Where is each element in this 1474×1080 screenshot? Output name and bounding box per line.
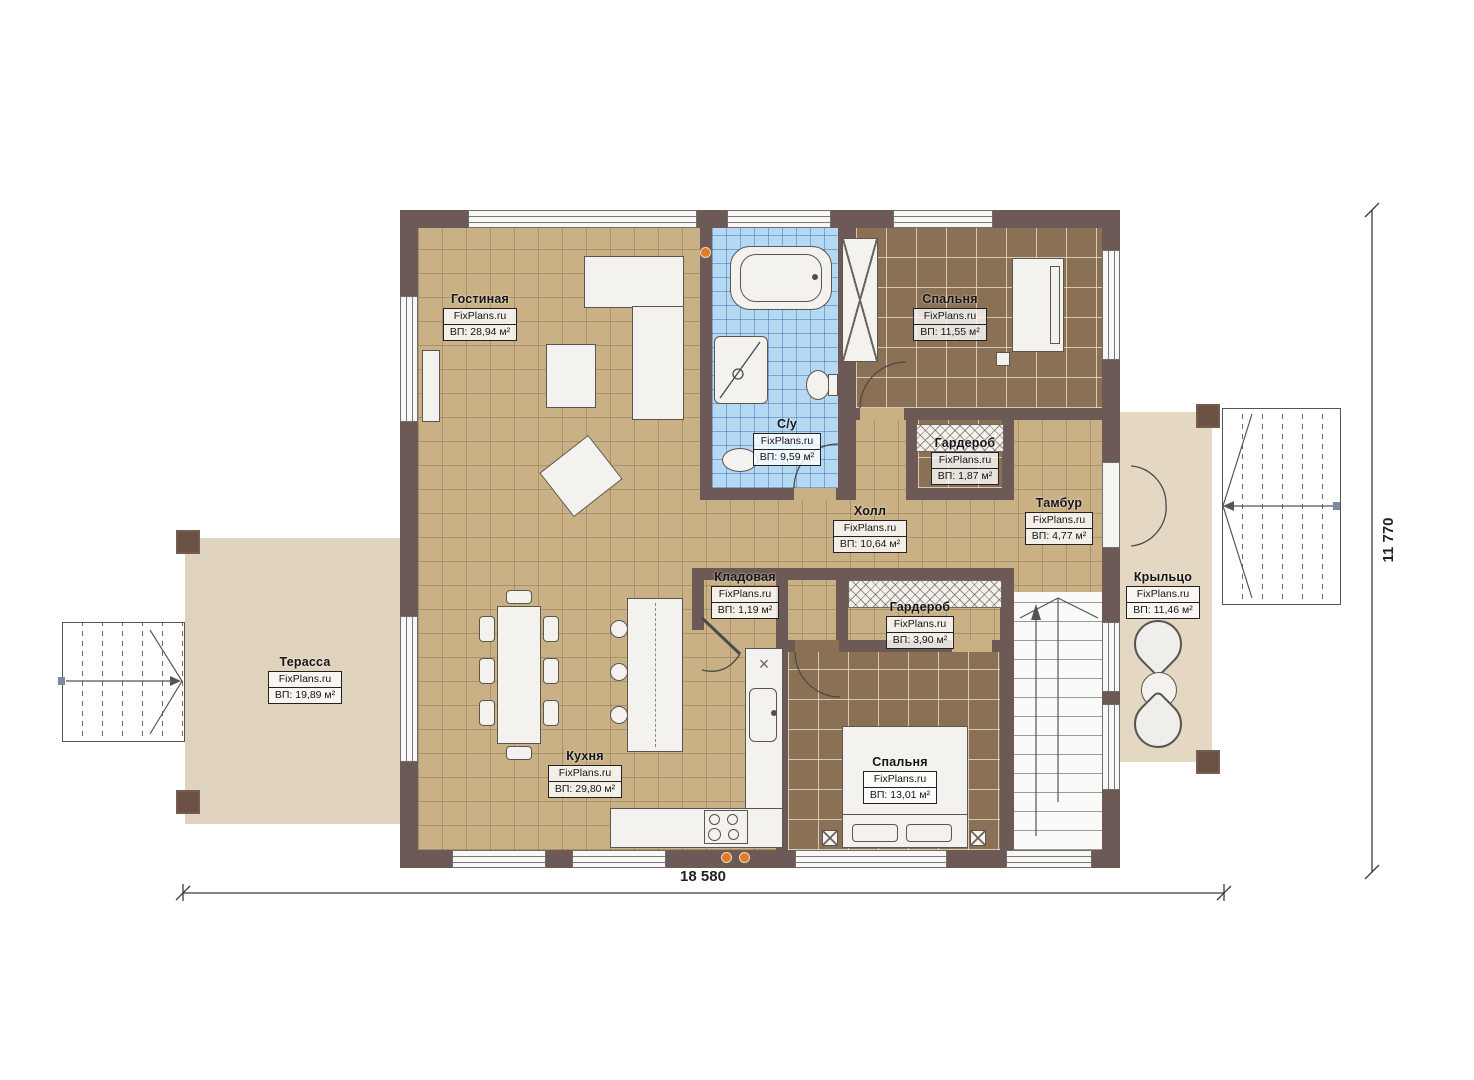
appliance-x-icon: × <box>752 652 776 676</box>
burner-icon <box>708 828 721 841</box>
window <box>1102 704 1120 790</box>
dimension-height-label: 11 770 <box>1380 500 1400 580</box>
room-name: Холл <box>805 504 935 518</box>
bar-stool <box>610 663 628 681</box>
terrace-post <box>176 530 200 554</box>
room-label-box: FixPlans.ru ВП: 1,87 м² <box>931 452 999 485</box>
window <box>893 210 993 228</box>
nightstand <box>822 830 838 846</box>
room-area: ВП: 4,77 м² <box>1026 528 1092 544</box>
utility-point-dot <box>740 853 749 862</box>
tv-stand <box>422 350 440 422</box>
room-name: Гостиная <box>415 292 545 306</box>
burner-icon <box>727 814 738 825</box>
room-label-box: FixPlans.ru ВП: 3,90 м² <box>886 616 954 649</box>
window <box>727 210 831 228</box>
brand-watermark: FixPlans.ru <box>864 772 936 787</box>
bar-stool <box>610 706 628 724</box>
kitchen-island <box>627 598 683 752</box>
room-label-porch: Крыльцо FixPlans.ru ВП: 11,46 м² <box>1100 570 1226 619</box>
sofa-section <box>584 256 684 308</box>
room-label-box: FixPlans.ru ВП: 4,77 м² <box>1025 512 1093 545</box>
room-label-bedroom1: Спальня FixPlans.ru ВП: 11,55 м² <box>885 292 1015 341</box>
window <box>572 850 666 868</box>
dimension-slash-ticks <box>176 886 1231 900</box>
door-opening <box>794 488 836 500</box>
window <box>452 850 546 868</box>
room-name: Кухня <box>517 749 653 763</box>
room-label-kitchen: Кухня FixPlans.ru ВП: 29,80 м² <box>517 749 653 798</box>
wall-segment <box>700 228 712 500</box>
brand-watermark: FixPlans.ru <box>834 521 906 536</box>
burner-icon <box>709 814 720 825</box>
door-opening <box>860 408 904 420</box>
porch-exterior-stairs <box>1222 408 1341 605</box>
shower-tray <box>714 336 768 404</box>
room-label-wardrobe2: Гардероб FixPlans.ru ВП: 3,90 м² <box>855 600 985 649</box>
toilet-tank <box>828 374 838 396</box>
nightstand <box>970 830 986 846</box>
room-label-vestibule: Тамбур FixPlans.ru ВП: 4,77 м² <box>994 496 1124 545</box>
dining-chair <box>543 658 559 684</box>
bed-pillow <box>906 824 952 842</box>
room-name: Спальня <box>832 755 968 769</box>
room-label-hall: Холл FixPlans.ru ВП: 10,64 м² <box>805 504 935 553</box>
brand-watermark: FixPlans.ru <box>754 434 820 449</box>
dining-chair <box>479 700 495 726</box>
terrace-exterior-stairs <box>62 622 185 742</box>
kitchen-base-counter <box>610 808 783 848</box>
room-label-box: FixPlans.ru ВП: 11,55 м² <box>913 308 987 341</box>
window <box>1102 622 1120 692</box>
utility-point-dot <box>722 853 731 862</box>
room-area: ВП: 10,64 м² <box>834 536 906 552</box>
wall-segment <box>1002 580 1014 850</box>
room-area: ВП: 28,94 м² <box>444 324 516 340</box>
room-label-terrace: Терасса FixPlans.ru ВП: 19,89 м² <box>240 655 370 704</box>
bathtub-inner <box>740 254 822 302</box>
dining-chair <box>479 658 495 684</box>
room-label-wardrobe1: Гардероб FixPlans.ru ВП: 1,87 м² <box>900 436 1030 485</box>
burner-icon <box>728 829 739 840</box>
dimension-extension-ticks <box>183 884 1224 901</box>
room-area: ВП: 3,90 м² <box>887 632 953 648</box>
room-area: ВП: 1,19 м² <box>712 602 778 618</box>
bed-pillow <box>852 824 898 842</box>
room-area: ВП: 29,80 м² <box>549 781 621 797</box>
room-label-box: FixPlans.ru ВП: 11,46 м² <box>1126 586 1200 619</box>
room-label-box: FixPlans.ru ВП: 9,59 м² <box>753 433 821 466</box>
island-divider-line <box>655 603 656 747</box>
room-name: Кладовая <box>680 570 810 584</box>
room-name: Крыльцо <box>1100 570 1226 584</box>
brand-watermark: FixPlans.ru <box>269 672 341 687</box>
brand-watermark: FixPlans.ru <box>932 453 998 468</box>
room-label-box: FixPlans.ru ВП: 13,01 м² <box>863 771 937 804</box>
porch-post <box>1196 404 1220 428</box>
dining-chair <box>479 616 495 642</box>
room-area: ВП: 13,01 м² <box>864 787 936 803</box>
wardrobe-cabinet <box>842 238 878 362</box>
window <box>1102 250 1120 360</box>
room-name: Спальня <box>885 292 1015 306</box>
bed-pillow <box>1050 266 1060 344</box>
room-label-box: FixPlans.ru ВП: 10,64 м² <box>833 520 907 553</box>
room-label-box: FixPlans.ru ВП: 19,89 м² <box>268 671 342 704</box>
room-label-living: Гостиная FixPlans.ru ВП: 28,94 м² <box>415 292 545 341</box>
room-name: С/у <box>722 417 852 431</box>
room-name: Терасса <box>240 655 370 669</box>
door-opening <box>795 640 839 652</box>
room-label-box: FixPlans.ru ВП: 29,80 м² <box>548 765 622 798</box>
room-label-pantry: Кладовая FixPlans.ru ВП: 1,19 м² <box>680 570 810 619</box>
dining-chair <box>543 700 559 726</box>
drain-icon <box>812 274 818 280</box>
floor-plan-canvas: × <box>0 0 1474 1080</box>
brand-watermark: FixPlans.ru <box>914 309 986 324</box>
room-label-box: FixPlans.ru ВП: 28,94 м² <box>443 308 517 341</box>
brand-watermark: FixPlans.ru <box>549 766 621 781</box>
dining-table <box>497 606 541 744</box>
room-label-box: FixPlans.ru ВП: 1,19 м² <box>711 586 779 619</box>
porch-post <box>1196 750 1220 774</box>
room-area: ВП: 9,59 м² <box>754 449 820 465</box>
toilet-bowl <box>806 370 830 400</box>
window <box>1006 850 1092 868</box>
room-label-bathroom: С/у FixPlans.ru ВП: 9,59 м² <box>722 417 852 466</box>
coffee-table <box>546 344 596 408</box>
dining-chair <box>543 616 559 642</box>
room-area: ВП: 11,55 м² <box>914 324 986 340</box>
dimension-width-label: 18 580 <box>643 868 763 885</box>
brand-watermark: FixPlans.ru <box>1026 513 1092 528</box>
faucet-icon <box>771 710 777 716</box>
bar-stool <box>610 620 628 638</box>
terrace-post <box>176 790 200 814</box>
room-area: ВП: 11,46 м² <box>1127 602 1199 618</box>
dining-chair <box>506 590 532 604</box>
dimension-slash-ticks <box>1365 203 1379 879</box>
interior-stairs <box>1014 592 1102 850</box>
room-area: ВП: 19,89 м² <box>269 687 341 703</box>
room-area: ВП: 1,87 м² <box>932 468 998 484</box>
bed-blanket-line <box>842 814 968 815</box>
brand-watermark: FixPlans.ru <box>444 309 516 324</box>
sofa-section <box>632 306 684 420</box>
brand-watermark: FixPlans.ru <box>1127 587 1199 602</box>
window <box>400 616 418 762</box>
room-label-bedroom2: Спальня FixPlans.ru ВП: 13,01 м² <box>832 755 968 804</box>
window <box>795 850 947 868</box>
utility-point-dot <box>701 248 710 257</box>
nightstand <box>996 352 1010 366</box>
brand-watermark: FixPlans.ru <box>712 587 778 602</box>
brand-watermark: FixPlans.ru <box>887 617 953 632</box>
room-name: Гардероб <box>855 600 985 614</box>
room-name: Гардероб <box>900 436 1030 450</box>
window <box>468 210 697 228</box>
room-name: Тамбур <box>994 496 1124 510</box>
